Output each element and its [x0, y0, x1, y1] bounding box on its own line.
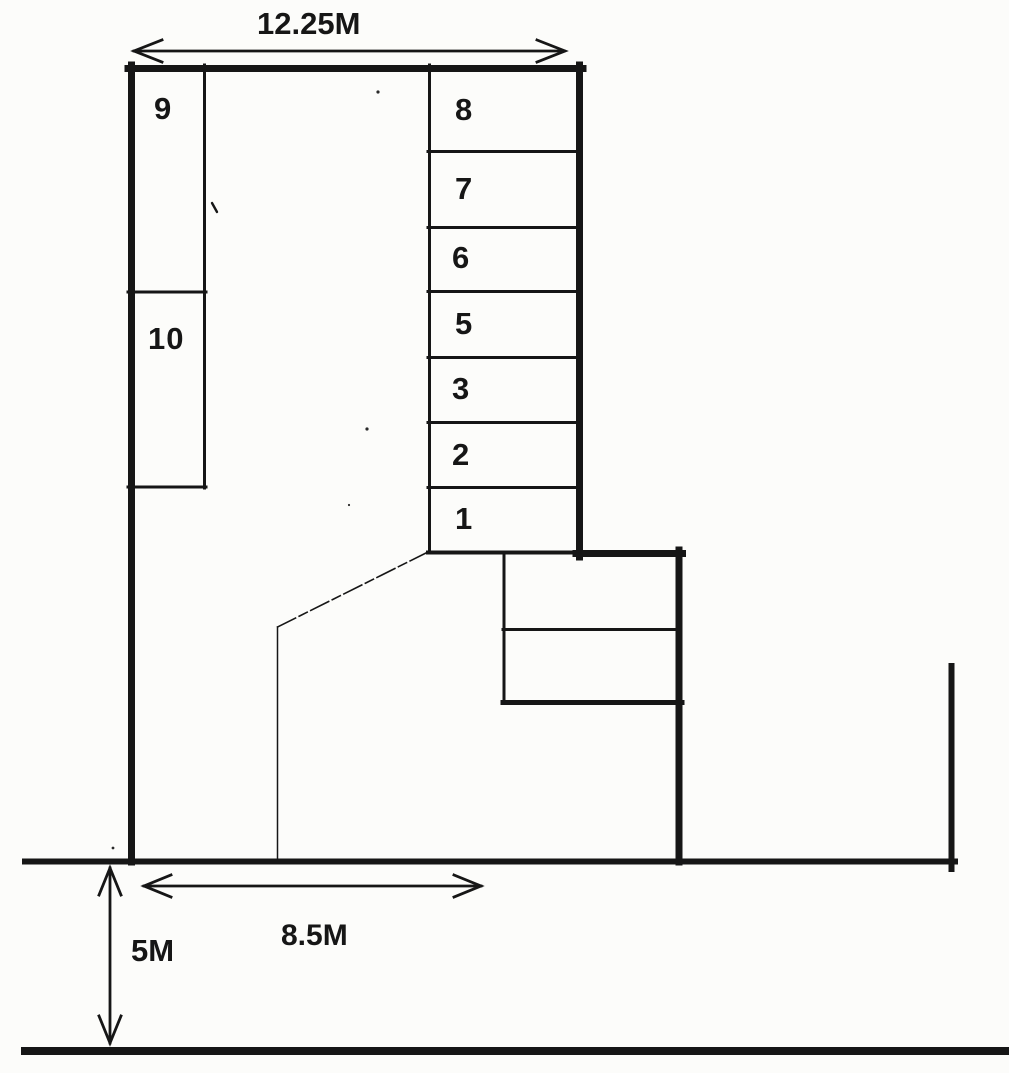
space-number: 5	[455, 308, 473, 340]
space-number: 10	[148, 323, 184, 355]
dimension-arrow-bottom-frontage	[144, 875, 481, 897]
space-number: 9	[154, 93, 172, 125]
space-number: 7	[455, 173, 473, 205]
parking-space-3: 3	[430, 357, 576, 422]
parking-space-9: 9	[128, 65, 204, 292]
parking-space-1: 1	[430, 487, 576, 552]
dimension-label-bottom-frontage: 8.5M	[281, 920, 348, 952]
parking-space-5: 5	[430, 291, 576, 357]
annex-space-upper	[504, 556, 678, 629]
parking-space-7: 7	[430, 151, 576, 227]
parking-space-10: 10	[128, 292, 204, 487]
space-number: 8	[455, 94, 473, 126]
stray-mark	[212, 203, 217, 212]
space-number: 1	[455, 503, 473, 535]
parking-site-plan: 9 10 8 7 6 5 3 2 1 12.25M 8.5M 5M	[0, 0, 1009, 1073]
dimension-label-road-width: 5M	[131, 935, 174, 967]
annex-space-lower	[504, 630, 678, 702]
parking-space-2: 2	[430, 422, 576, 487]
space-number: 3	[452, 373, 470, 405]
scan-speckle	[112, 847, 115, 850]
scan-speckle	[376, 90, 379, 93]
space-number: 6	[452, 242, 470, 274]
space-number: 2	[452, 439, 470, 471]
dimension-arrow-top-width	[134, 40, 565, 62]
parking-space-6: 6	[430, 227, 576, 291]
parking-space-8: 8	[430, 66, 576, 151]
diagonal-boundary-line	[278, 552, 429, 627]
dimension-label-top-width: 12.25M	[257, 8, 360, 40]
scan-speckle	[365, 427, 368, 430]
dimension-arrow-road-width	[99, 868, 121, 1043]
scan-speckle	[348, 504, 350, 506]
